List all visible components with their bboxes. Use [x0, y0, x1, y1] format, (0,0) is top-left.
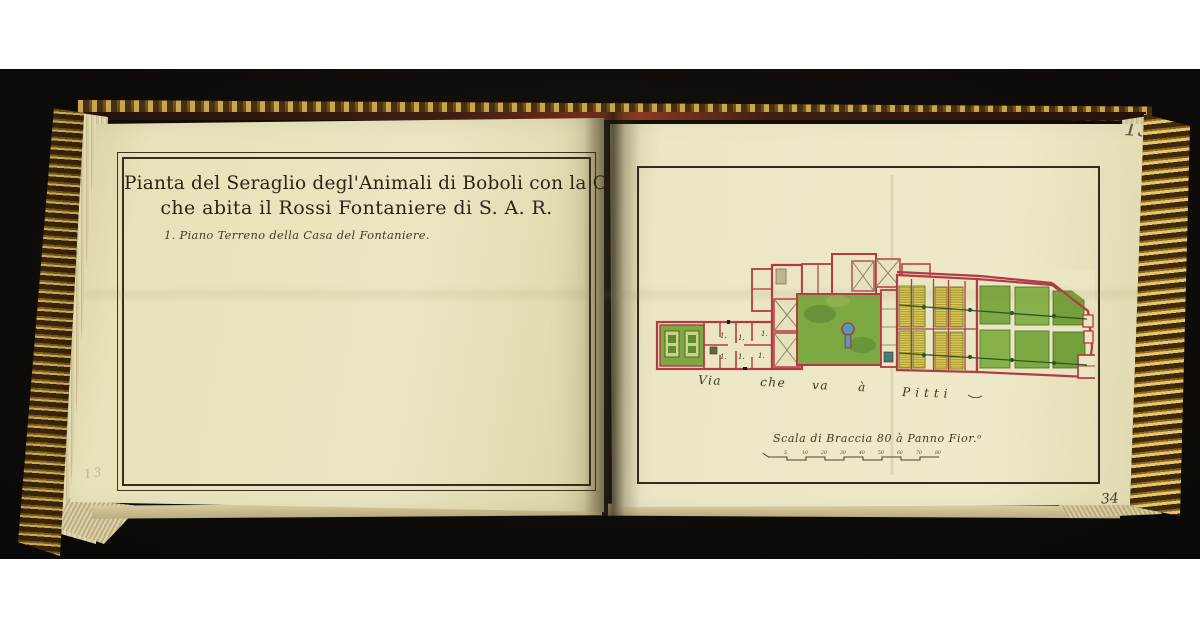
scale-tick: 30	[840, 450, 846, 456]
flourish	[968, 395, 982, 398]
scale-tick: 80	[935, 450, 941, 456]
left-page: 15 Pianta del Seraglio degl'Animali di B…	[70, 118, 604, 512]
plate-title-line1: Pianta del Seraglio degl'Animali di Bobo…	[124, 173, 589, 194]
road-word: che	[760, 375, 787, 390]
scale-label: Scala di Braccia 80 à Panno Fior.ᵒ	[773, 432, 982, 445]
right-page-ruled-frame: 1. 1. 1. 1. 1. 1.	[637, 166, 1100, 484]
pencil-mark-bottom-left: 13	[83, 465, 104, 482]
scale-tick: 70	[916, 450, 922, 456]
scale-tick: 40	[858, 450, 865, 456]
scale-tick: 60	[897, 450, 903, 456]
road-label: Via che va à Pitti	[698, 373, 982, 401]
right-page: 13	[604, 115, 1152, 515]
screenshot: 15 Pianta del Seraglio degl'Animali di B…	[0, 0, 1200, 628]
scale-bar: Scala di Braccia 80 à Panno Fior.ᵒ 5 10 …	[763, 432, 982, 460]
road-word: à	[858, 380, 867, 394]
central-courtyard	[797, 294, 881, 365]
scale-tick: 20	[820, 450, 827, 456]
road-word: va	[812, 378, 829, 393]
room-number: 1.	[720, 353, 727, 361]
road-word: Pitti	[901, 385, 953, 401]
well-feature	[710, 347, 717, 354]
road-word: Via	[698, 373, 722, 388]
plate-caption: 1. Piano Terreno della Casa del Fontanie…	[164, 228, 589, 242]
scale-tick: 10	[802, 450, 808, 456]
left-page-inner-frame: Pianta del Seraglio degl'Animali di Bobo…	[122, 157, 591, 486]
room-number: 1.	[738, 334, 745, 342]
corridor-rooms	[881, 290, 897, 367]
room-number: 1.	[758, 352, 765, 360]
plate-title-line2: che abita il Rossi Fontaniere di S. A. R…	[124, 197, 589, 219]
fountain	[842, 323, 854, 335]
room-number: 1.	[738, 353, 745, 361]
boboli-plan-drawing: 1. 1. 1. 1. 1. 1.	[640, 169, 1095, 479]
scan-artifact-band	[86, 290, 1138, 299]
scale-tick: 50	[878, 450, 884, 456]
book-gutter-shadow	[584, 112, 640, 516]
fontaniere-house-block: 1. 1. 1. 1. 1. 1.	[657, 320, 772, 370]
pencil-page-number: 34	[1100, 490, 1119, 507]
left-page-ruled-frame: Pianta del Seraglio degl'Animali di Bobo…	[117, 152, 596, 491]
room-number: 1.	[761, 330, 768, 338]
scale-tick: 5	[784, 450, 787, 456]
room-number: 1.	[720, 332, 727, 340]
